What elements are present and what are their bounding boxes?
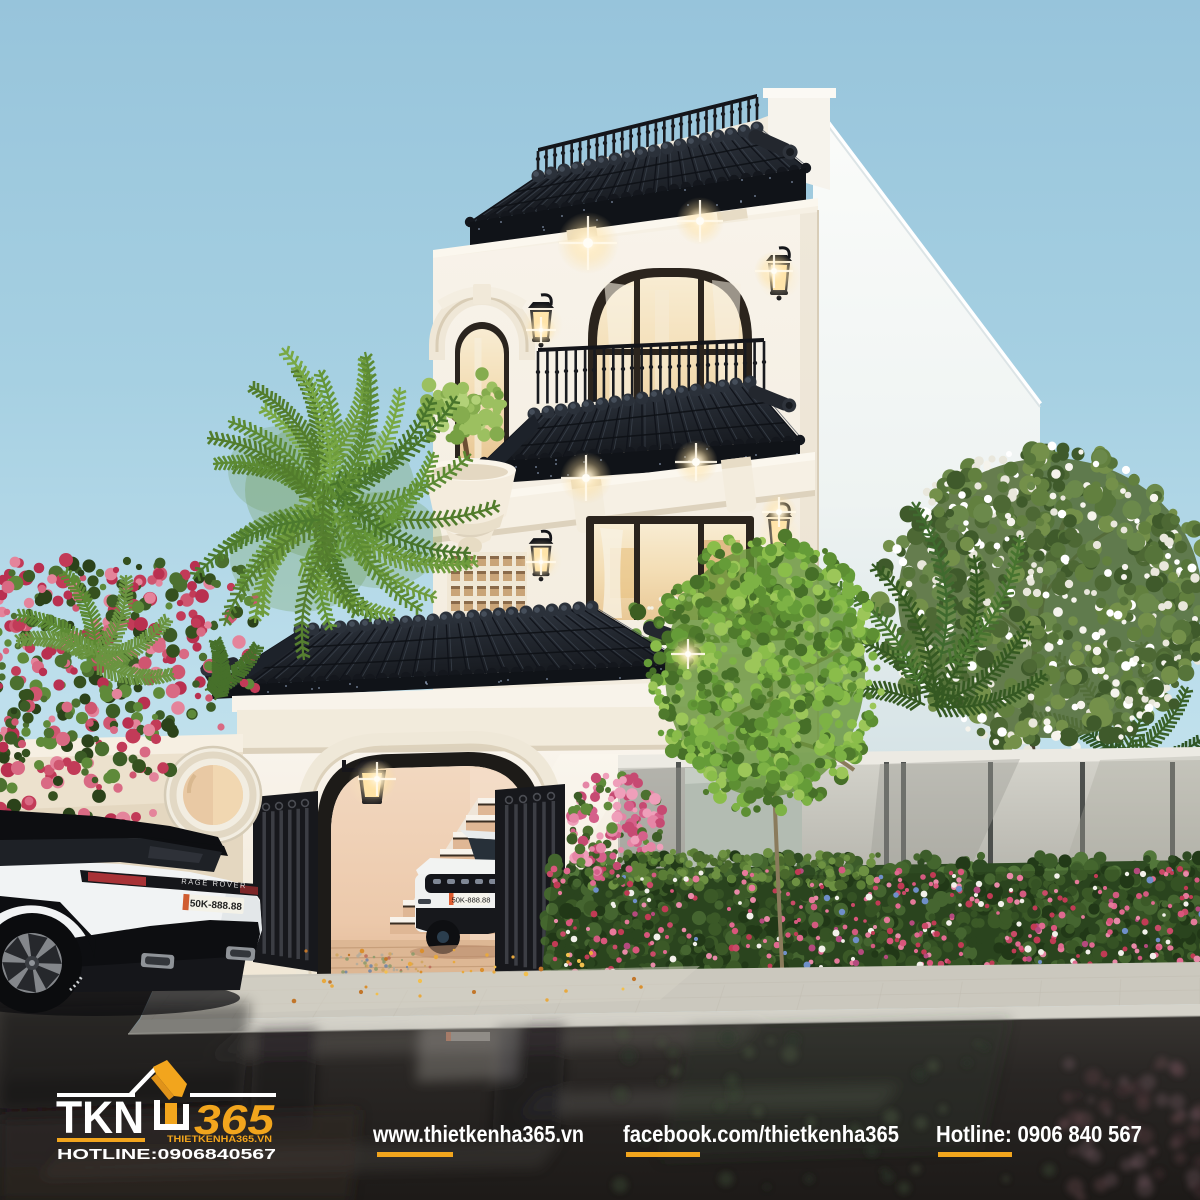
svg-text:50K-888.88: 50K-888.88 xyxy=(452,896,491,905)
